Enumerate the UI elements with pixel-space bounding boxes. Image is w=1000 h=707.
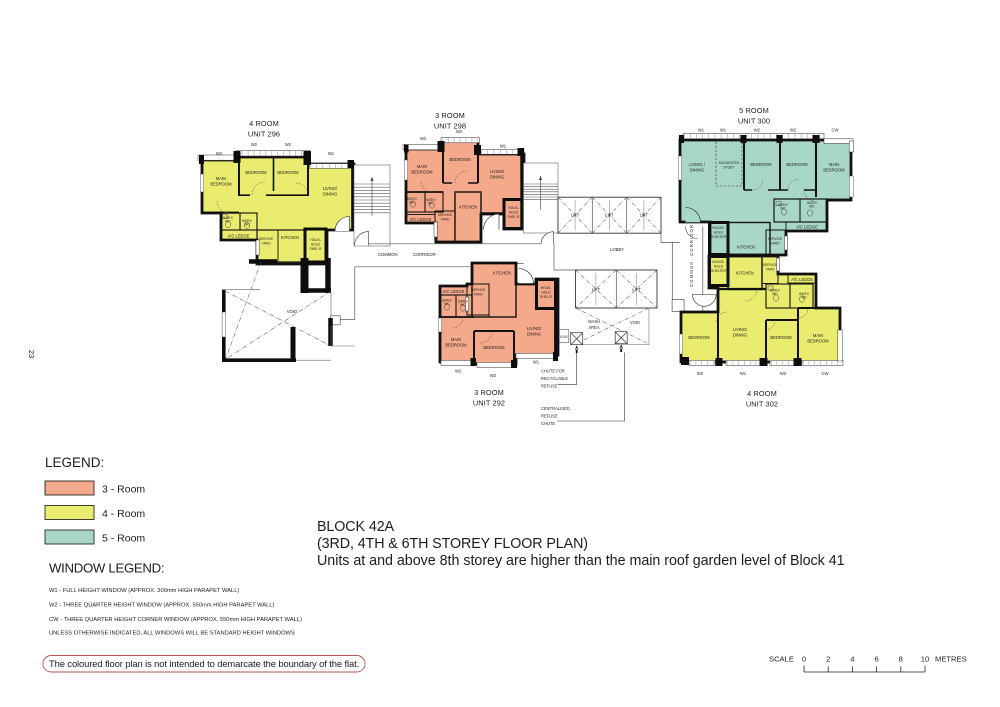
svg-text:AREA: AREA xyxy=(588,325,599,330)
svg-text:DINING: DINING xyxy=(490,175,504,180)
svg-text:VOID: VOID xyxy=(630,320,640,325)
svg-text:MAIN: MAIN xyxy=(451,337,461,342)
svg-text:SHEL.R: SHEL.R xyxy=(310,247,323,251)
svg-text:LIVING/: LIVING/ xyxy=(527,326,542,331)
svg-text:HOUS-: HOUS- xyxy=(310,238,321,242)
svg-text:COMMON: COMMON xyxy=(378,252,398,257)
svg-text:W2: W2 xyxy=(285,142,292,147)
svg-text:10: 10 xyxy=(921,655,929,664)
svg-text:HOUS-: HOUS- xyxy=(541,286,552,290)
svg-text:BEDROOM: BEDROOM xyxy=(770,335,792,340)
svg-text:8: 8 xyxy=(899,655,903,664)
svg-text:CHUTE FOR: CHUTE FOR xyxy=(541,369,565,374)
svg-text:BEDROOM: BEDROOM xyxy=(449,157,471,162)
svg-text:REFUSE: REFUSE xyxy=(541,414,558,419)
svg-text:YARD: YARD xyxy=(474,292,484,296)
svg-text:LIFT: LIFT xyxy=(605,213,614,218)
svg-text:MAIN: MAIN xyxy=(829,162,839,167)
svg-text:MAIN: MAIN xyxy=(813,333,823,338)
svg-text:3 ROOM: 3 ROOM xyxy=(474,388,504,397)
svg-text:4: 4 xyxy=(850,655,854,664)
svg-text:LOBBY: LOBBY xyxy=(610,247,624,252)
svg-text:MAIN: MAIN xyxy=(417,164,427,169)
svg-text:YARD: YARD xyxy=(262,241,272,245)
svg-text:W2: W2 xyxy=(697,371,704,376)
svg-text:23: 23 xyxy=(27,350,36,358)
svg-text:CW: CW xyxy=(832,128,839,133)
svg-text:W1: W1 xyxy=(698,128,705,133)
svg-text:HOUSE-: HOUSE- xyxy=(712,226,725,230)
svg-text:UNIT 296: UNIT 296 xyxy=(248,130,280,139)
svg-text:VOID: VOID xyxy=(560,335,569,339)
svg-text:BEDROOM: BEDROOM xyxy=(411,170,433,175)
svg-text:WC: WC xyxy=(428,202,434,206)
svg-text:HOLD: HOLD xyxy=(714,230,724,234)
svg-text:W2: W2 xyxy=(251,142,258,147)
svg-text:LIFT: LIFT xyxy=(571,213,580,218)
svg-text:(3RD, 4TH & 6TH STOREY FLOOR P: (3RD, 4TH & 6TH STOREY FLOOR PLAN) xyxy=(317,536,588,552)
svg-text:DINING: DINING xyxy=(733,333,747,338)
svg-text:W2: W2 xyxy=(216,151,223,156)
svg-text:SERVICE: SERVICE xyxy=(768,237,783,241)
svg-text:BEDROOM: BEDROOM xyxy=(688,335,710,340)
svg-text:BEDROOM: BEDROOM xyxy=(210,182,232,187)
svg-text:W2: W2 xyxy=(754,128,761,133)
svg-text:WC: WC xyxy=(772,292,778,296)
svg-text:LIFT: LIFT xyxy=(632,287,641,292)
svg-text:YARD: YARD xyxy=(441,217,451,221)
svg-text:SERVICE: SERVICE xyxy=(471,288,486,292)
svg-text:UNIT 300: UNIT 300 xyxy=(738,117,770,126)
svg-text:YARD: YARD xyxy=(771,241,781,245)
svg-text:W2: W2 xyxy=(790,128,797,133)
svg-text:WC: WC xyxy=(460,303,466,307)
svg-text:SHELTER: SHELTER xyxy=(711,269,727,273)
svg-text:LIVING/: LIVING/ xyxy=(733,327,748,332)
svg-text:CORRIDOR: CORRIDOR xyxy=(413,252,436,257)
svg-text:LIVING/: LIVING/ xyxy=(323,186,338,191)
svg-text:KITCHEN: KITCHEN xyxy=(281,235,299,240)
svg-text:KITCHEN: KITCHEN xyxy=(493,271,511,276)
svg-text:LIVING /: LIVING / xyxy=(689,162,706,167)
svg-text:4 ROOM: 4 ROOM xyxy=(747,389,777,398)
svg-text:SHEL.R: SHEL.R xyxy=(508,215,521,219)
svg-text:W1: W1 xyxy=(720,128,727,133)
svg-text:2: 2 xyxy=(826,655,830,664)
svg-text:A/C LEDGE: A/C LEDGE xyxy=(443,289,465,294)
svg-text:VOID: VOID xyxy=(287,309,297,314)
svg-text:SERVICE: SERVICE xyxy=(763,263,778,267)
svg-text:LIFT: LIFT xyxy=(640,213,649,218)
svg-text:6: 6 xyxy=(874,655,878,664)
svg-text:W1 - FULL HEIGHT WINDOW (APPRO: W1 - FULL HEIGHT WINDOW (APPROX. 300mm H… xyxy=(49,588,239,594)
svg-text:SUGGESTED: SUGGESTED xyxy=(719,161,740,165)
svg-text:YARD: YARD xyxy=(766,267,776,271)
svg-text:0: 0 xyxy=(802,655,806,664)
svg-text:UNIT 302: UNIT 302 xyxy=(746,400,778,409)
svg-text:W2: W2 xyxy=(456,129,463,134)
svg-text:RECYCLABLE: RECYCLABLE xyxy=(541,376,568,381)
svg-text:COMMON CORRIDOR: COMMON CORRIDOR xyxy=(689,225,694,287)
svg-text:UNIT 292: UNIT 292 xyxy=(473,399,505,408)
svg-text:METRES: METRES xyxy=(935,655,967,664)
svg-text:STUDY: STUDY xyxy=(723,165,735,169)
svg-text:W2: W2 xyxy=(455,369,462,374)
svg-text:LIVING/: LIVING/ xyxy=(490,169,505,174)
svg-text:WASH: WASH xyxy=(588,319,600,324)
svg-text:HOLD: HOLD xyxy=(311,242,321,246)
svg-text:HOLD: HOLD xyxy=(714,264,724,268)
svg-text:W1: W1 xyxy=(533,360,540,365)
svg-text:BEDROOM: BEDROOM xyxy=(786,162,808,167)
svg-text:SCALE: SCALE xyxy=(769,655,794,664)
svg-text:W2: W2 xyxy=(420,136,427,141)
svg-text:WC: WC xyxy=(409,201,415,205)
svg-text:BLOCK 42A: BLOCK 42A xyxy=(317,519,395,535)
svg-text:WC: WC xyxy=(225,220,231,224)
svg-text:W2 - THREE QUARTER HEIGHT WIND: W2 - THREE QUARTER HEIGHT WINDOW (APPROX… xyxy=(49,603,275,609)
svg-text:3 - Room: 3 - Room xyxy=(102,484,145,496)
svg-text:SERVICE: SERVICE xyxy=(438,213,453,217)
svg-text:WC: WC xyxy=(244,223,250,227)
svg-text:W1: W1 xyxy=(500,144,507,149)
svg-text:The coloured floor plan is not: The coloured floor plan is not intended … xyxy=(49,658,359,669)
svg-text:CW: CW xyxy=(822,371,829,376)
svg-text:CHUTE: CHUTE xyxy=(541,421,555,426)
svg-text:HOLD: HOLD xyxy=(541,290,551,294)
svg-text:SHEL.R: SHEL.R xyxy=(540,295,553,299)
svg-text:W2: W2 xyxy=(780,371,787,376)
svg-text:KITCHEN: KITCHEN xyxy=(459,205,477,210)
svg-text:DINING: DINING xyxy=(690,168,704,173)
svg-text:W1: W1 xyxy=(328,151,335,156)
svg-text:WINDOW LEGEND:: WINDOW LEGEND: xyxy=(49,561,164,576)
svg-text:DINING: DINING xyxy=(323,192,337,197)
svg-text:W2: W2 xyxy=(490,373,497,378)
svg-text:3 ROOM: 3 ROOM xyxy=(435,111,465,120)
svg-text:4 - Room: 4 - Room xyxy=(102,508,145,520)
svg-text:4 ROOM: 4 ROOM xyxy=(249,119,279,128)
svg-text:LIFT: LIFT xyxy=(592,287,601,292)
svg-text:DINING: DINING xyxy=(527,332,541,337)
svg-text:HOLD: HOLD xyxy=(509,210,519,214)
svg-text:BEDROOM: BEDROOM xyxy=(277,170,299,175)
svg-text:HOUSE-: HOUSE- xyxy=(712,260,725,264)
svg-text:CW - THREE QUARTER HEIGHT CORN: CW - THREE QUARTER HEIGHT CORNER WINDOW … xyxy=(49,617,302,623)
svg-text:A/C LEDGE: A/C LEDGE xyxy=(796,225,818,230)
svg-text:WC: WC xyxy=(801,296,807,300)
svg-text:WC: WC xyxy=(780,207,786,211)
svg-text:SHELTER: SHELTER xyxy=(711,235,727,239)
svg-text:KITCHEN: KITCHEN xyxy=(737,245,755,250)
svg-text:Units at and above 8th storey: Units at and above 8th storey are higher… xyxy=(317,553,845,569)
svg-text:WC: WC xyxy=(444,302,450,306)
svg-text:5 - Room: 5 - Room xyxy=(102,533,145,545)
svg-text:BEDROOM: BEDROOM xyxy=(483,345,505,350)
svg-text:A/C LEDGE: A/C LEDGE xyxy=(791,277,813,282)
svg-text:BEDROOM: BEDROOM xyxy=(445,343,467,348)
svg-text:A/C LEDGE: A/C LEDGE xyxy=(228,234,250,239)
svg-text:BEDROOM: BEDROOM xyxy=(823,168,845,173)
svg-text:REFUSE: REFUSE xyxy=(541,384,558,389)
svg-text:LEGEND:: LEGEND: xyxy=(45,455,104,470)
svg-text:MAIN: MAIN xyxy=(216,176,226,181)
svg-text:BEDROOM: BEDROOM xyxy=(245,170,267,175)
svg-text:5 ROOM: 5 ROOM xyxy=(739,106,769,115)
svg-text:HOUS-: HOUS- xyxy=(508,206,519,210)
svg-text:WC: WC xyxy=(809,205,815,209)
svg-text:W1: W1 xyxy=(740,371,747,376)
svg-text:UNLESS OTHERWISE INDICATED, AL: UNLESS OTHERWISE INDICATED, ALL WINDOWS … xyxy=(49,631,295,637)
svg-text:BEDROOM: BEDROOM xyxy=(807,339,829,344)
svg-text:SERVICE: SERVICE xyxy=(259,237,274,241)
svg-text:A/C LEDGE: A/C LEDGE xyxy=(410,217,432,222)
svg-text:BEDROOM: BEDROOM xyxy=(750,162,772,167)
svg-text:KITCHEN: KITCHEN xyxy=(736,271,754,276)
svg-text:CENTRALISED: CENTRALISED xyxy=(541,406,570,411)
